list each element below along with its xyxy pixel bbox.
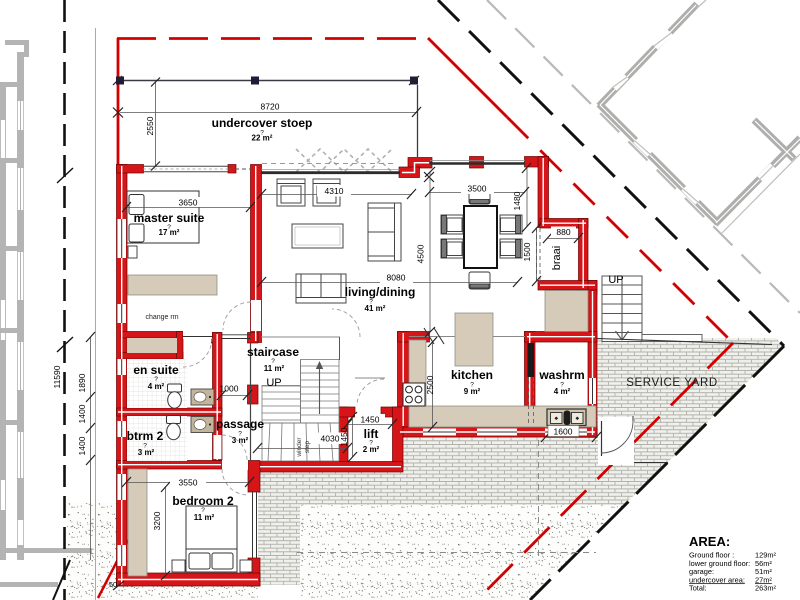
svg-text:880: 880	[556, 227, 570, 237]
svg-text:1450: 1450	[361, 415, 380, 425]
svg-text:2500: 2500	[425, 375, 435, 394]
svg-text:17 m²: 17 m²	[159, 228, 180, 237]
svg-text:change rm: change rm	[145, 314, 178, 321]
svg-text:1450: 1450	[339, 427, 349, 446]
svg-text:Total:: Total:	[689, 584, 707, 593]
svg-text:263m²: 263m²	[755, 584, 776, 593]
svg-text:4310: 4310	[325, 186, 344, 196]
svg-text:washrm: washrm	[538, 368, 584, 382]
svg-text:1500: 1500	[522, 242, 532, 261]
svg-text:3550: 3550	[179, 478, 198, 488]
svg-text:2 m²: 2 m²	[363, 445, 380, 454]
svg-text:3 m²: 3 m²	[232, 436, 249, 445]
svg-text:1480: 1480	[512, 191, 522, 210]
svg-text:8080: 8080	[387, 273, 406, 283]
svg-text:1890: 1890	[77, 373, 87, 392]
svg-text:1600: 1600	[554, 427, 573, 437]
svg-text:3 m²: 3 m²	[138, 448, 155, 457]
svg-text:11 m²: 11 m²	[194, 513, 215, 522]
svg-text:master suite: master suite	[134, 211, 205, 225]
svg-text:btrm 2: btrm 2	[127, 429, 164, 443]
svg-text:living/dining: living/dining	[345, 285, 416, 299]
svg-text:41 m²: 41 m²	[365, 304, 386, 313]
svg-text:22 m²: 22 m²	[252, 134, 273, 143]
svg-text:11590: 11590	[52, 365, 62, 388]
svg-text:UP: UP	[266, 377, 281, 389]
svg-text:4030: 4030	[321, 434, 340, 444]
svg-text:4500: 4500	[416, 244, 426, 263]
svg-text:bedroom 2: bedroom 2	[172, 494, 234, 508]
svg-text:winder: winder	[296, 437, 303, 458]
svg-text:kitchen: kitchen	[451, 368, 493, 382]
svg-text:passage: passage	[216, 417, 264, 431]
svg-text:AREA:: AREA:	[689, 534, 730, 549]
svg-text:8720: 8720	[261, 102, 280, 112]
svg-text:1400: 1400	[77, 436, 87, 455]
svg-text:staircase: staircase	[247, 345, 299, 359]
svg-text:en suite: en suite	[133, 363, 179, 377]
svg-text:11 m²: 11 m²	[264, 364, 285, 373]
svg-text:3500: 3500	[468, 184, 487, 194]
svg-text:1400: 1400	[77, 404, 87, 423]
svg-text:2550: 2550	[145, 116, 155, 135]
svg-text:9 m²: 9 m²	[464, 387, 481, 396]
svg-text:1000: 1000	[220, 384, 239, 394]
svg-text:undercover stoep: undercover stoep	[212, 116, 313, 130]
svg-text:4 m²: 4 m²	[554, 387, 571, 396]
svg-text:SERVICE YARD: SERVICE YARD	[626, 377, 718, 389]
svg-text:step: step	[304, 440, 311, 453]
svg-text:3650: 3650	[179, 198, 198, 208]
svg-text:braai: braai	[551, 246, 563, 270]
svg-text:3200: 3200	[152, 511, 162, 530]
svg-text:50: 50	[109, 580, 117, 589]
svg-text:4 m²: 4 m²	[148, 382, 165, 391]
svg-text:UP: UP	[608, 274, 623, 286]
